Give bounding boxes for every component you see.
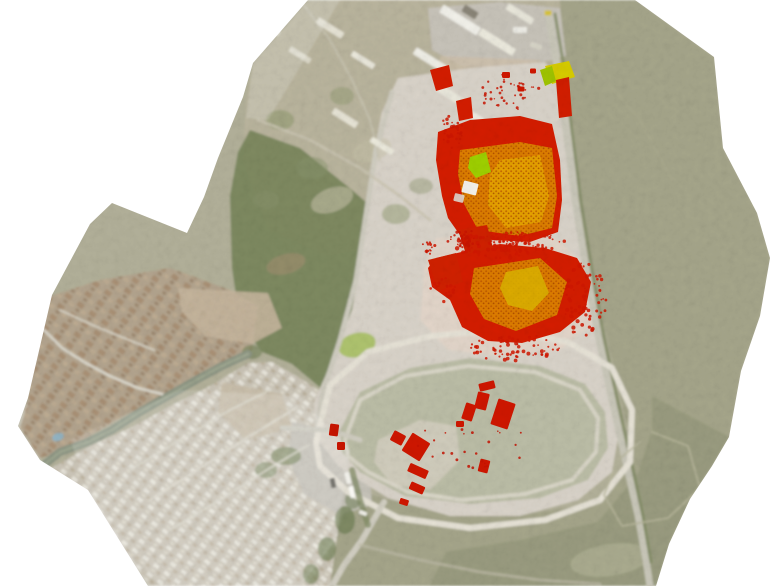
map-clipped-root <box>0 0 780 586</box>
greenhouse-12 <box>259 20 281 37</box>
orthomosaic-image <box>0 0 780 586</box>
heat-overlay-layer <box>0 0 780 586</box>
orthophoto-canvas <box>0 0 780 586</box>
photo-grain-overlay <box>0 0 780 586</box>
